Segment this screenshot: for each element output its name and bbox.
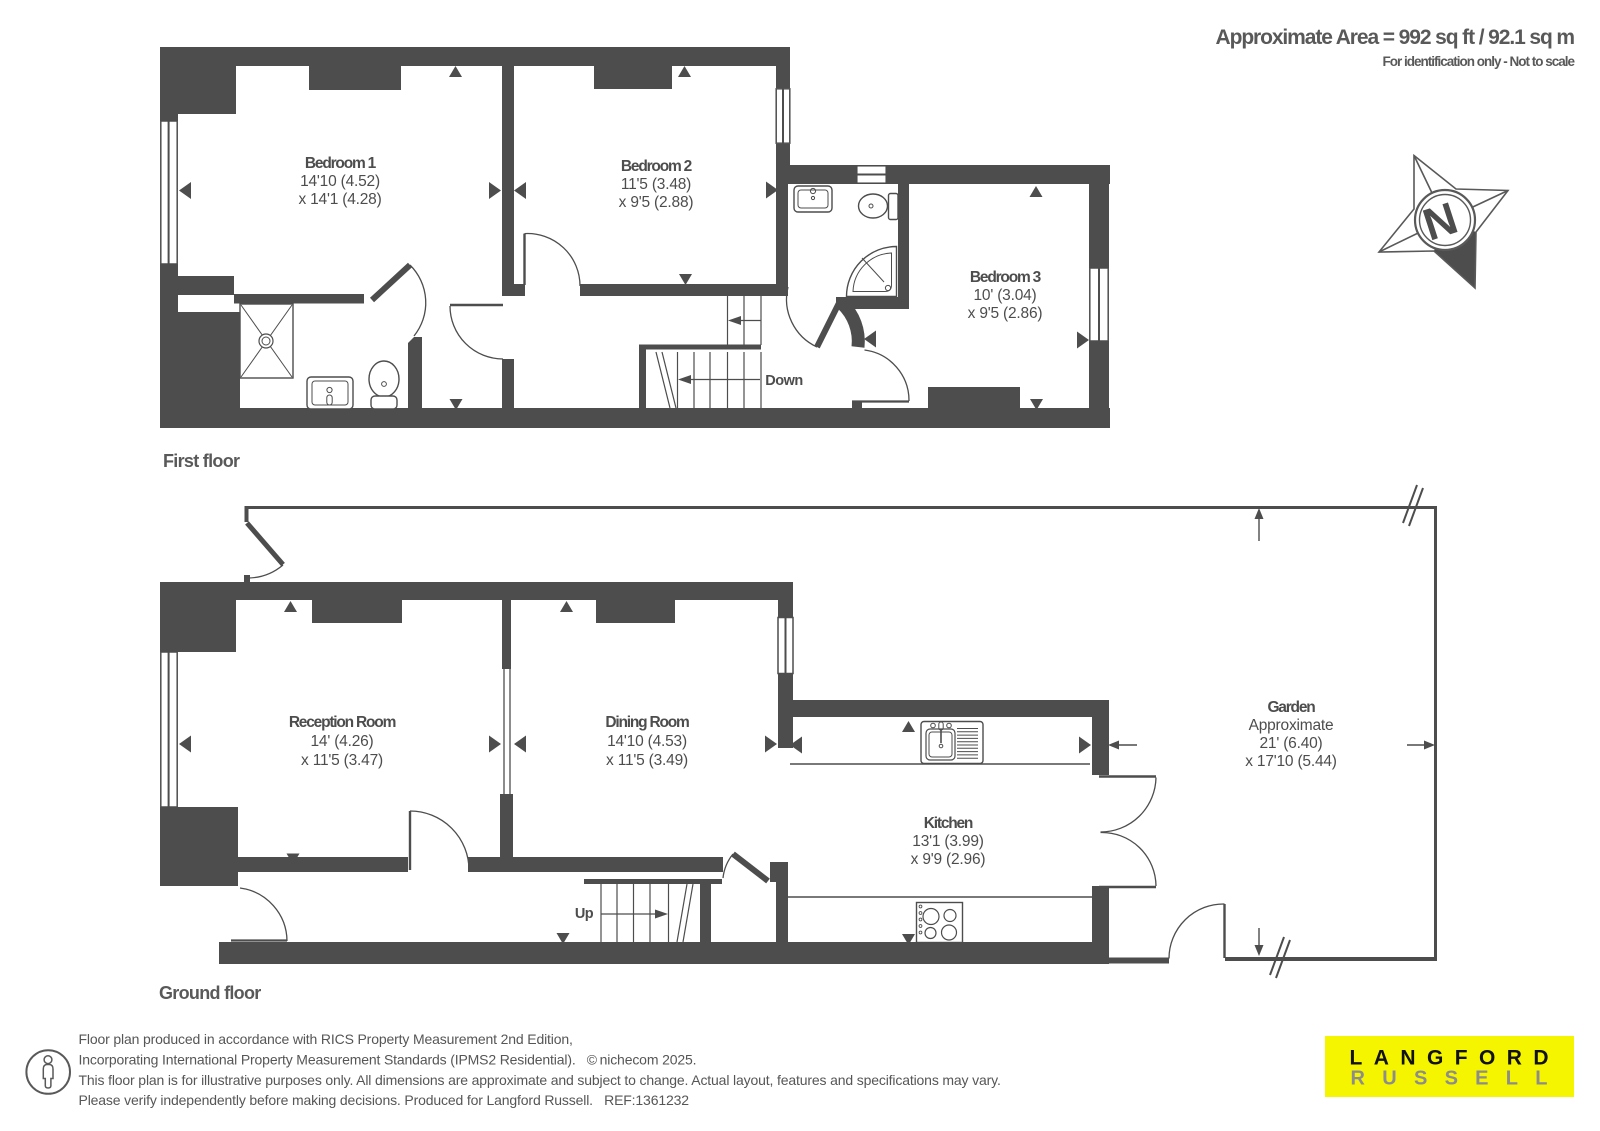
svg-text:Reception Room: Reception Room (289, 714, 396, 731)
svg-text:x 11'5 (3.47): x 11'5 (3.47) (301, 752, 383, 769)
svg-text:21' (6.40): 21' (6.40) (1260, 735, 1323, 752)
svg-text:Incorporating International Pr: Incorporating International Property Mea… (79, 1052, 697, 1068)
svg-text:x 9'5 (2.86): x 9'5 (2.86) (968, 305, 1043, 322)
svg-text:Kitchen: Kitchen (924, 815, 973, 832)
svg-text:10' (3.04): 10' (3.04) (974, 287, 1037, 304)
svg-text:Up: Up (575, 906, 594, 922)
svg-text:x 17'10 (5.44): x 17'10 (5.44) (1245, 753, 1337, 770)
svg-text:First floor: First floor (163, 451, 240, 471)
svg-text:For identification only - Not: For identification only - Not to scale (1382, 54, 1575, 69)
svg-text:Please verify independently be: Please verify independently before makin… (79, 1092, 690, 1108)
svg-text:x 11'5 (3.49): x 11'5 (3.49) (606, 752, 688, 769)
svg-text:14'10 (4.52): 14'10 (4.52) (300, 173, 380, 190)
svg-text:Approximate: Approximate (1249, 717, 1334, 734)
svg-text:Ground floor: Ground floor (159, 983, 261, 1003)
svg-text:13'1 (3.99): 13'1 (3.99) (912, 833, 983, 850)
svg-text:Approximate Area = 992 sq ft /: Approximate Area = 992 sq ft / 92.1 sq m (1216, 26, 1575, 49)
svg-text:Bedroom 2: Bedroom 2 (621, 158, 692, 175)
svg-text:Garden: Garden (1267, 699, 1315, 716)
svg-text:14'10 (4.53): 14'10 (4.53) (607, 733, 687, 750)
svg-text:14' (4.26): 14' (4.26) (311, 733, 374, 750)
svg-text:Bedroom 3: Bedroom 3 (970, 269, 1042, 286)
svg-text:x 14'1 (4.28): x 14'1 (4.28) (298, 191, 381, 208)
svg-text:Down: Down (765, 373, 802, 389)
svg-text:Floor plan produced in accorda: Floor plan produced in accordance with R… (79, 1031, 573, 1047)
svg-text:Dining Room: Dining Room (605, 714, 689, 731)
svg-text:This floor plan is for illustr: This floor plan is for illustrative purp… (79, 1072, 1001, 1088)
svg-text:11'5 (3.48): 11'5 (3.48) (621, 176, 691, 193)
svg-text:Bedroom 1: Bedroom 1 (305, 155, 377, 172)
svg-text:x 9'9 (2.96): x 9'9 (2.96) (911, 851, 986, 868)
svg-text:x 9'5 (2.88): x 9'5 (2.88) (619, 194, 694, 211)
